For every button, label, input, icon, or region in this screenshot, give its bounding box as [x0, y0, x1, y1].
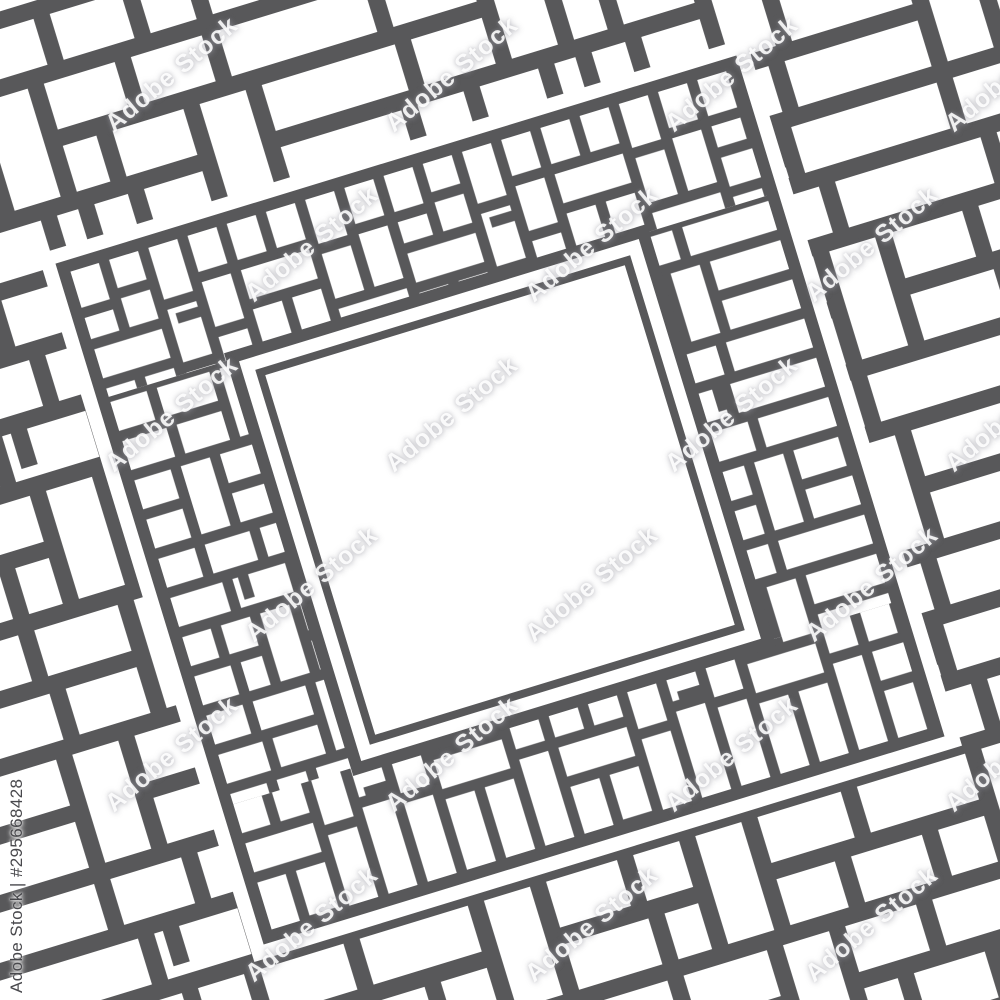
maze-pattern-graphic: [0, 0, 1000, 1000]
stock-image-canvas: Adobe StockAdobe StockAdobe StockAdobe S…: [0, 0, 1000, 1000]
stock-id-watermark: Adobe Stock | #295668428: [7, 779, 27, 993]
